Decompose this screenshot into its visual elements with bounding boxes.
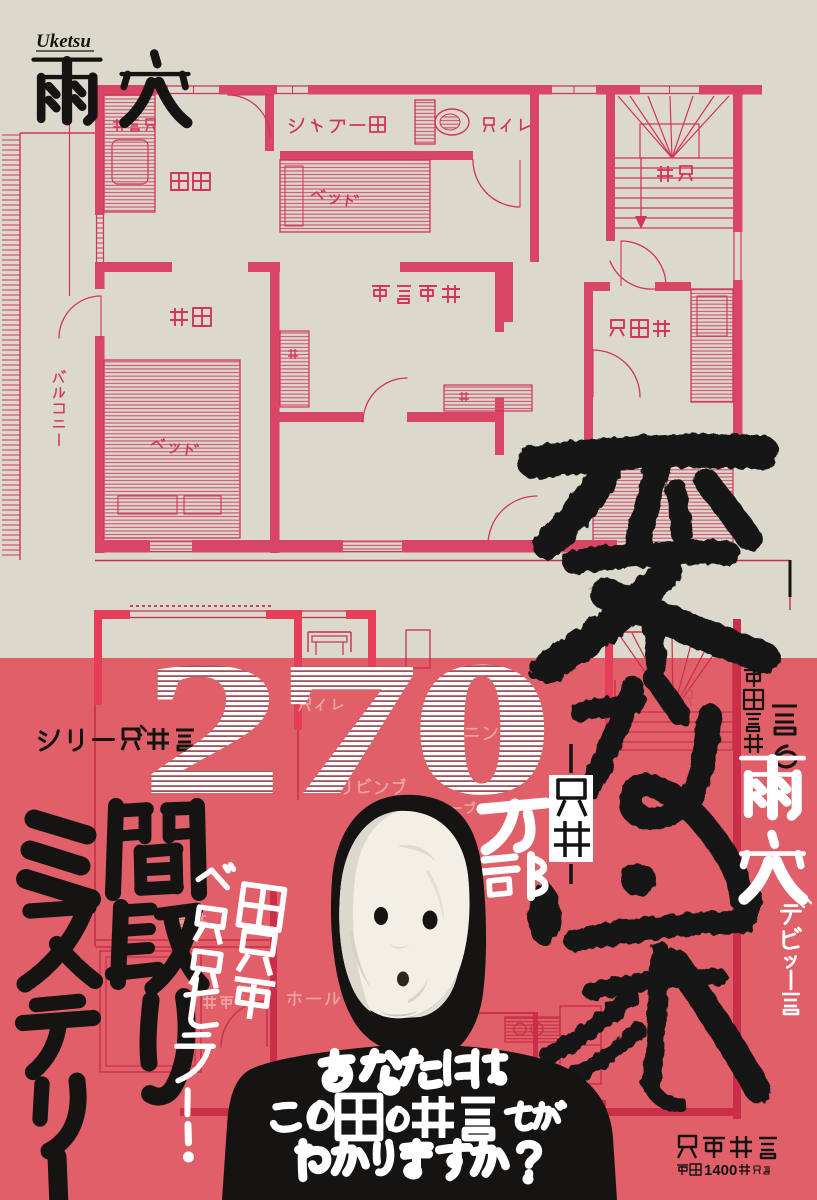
svg-text:Uketsu: Uketsu: [36, 31, 91, 52]
svg-text:1400: 1400: [704, 1162, 737, 1179]
